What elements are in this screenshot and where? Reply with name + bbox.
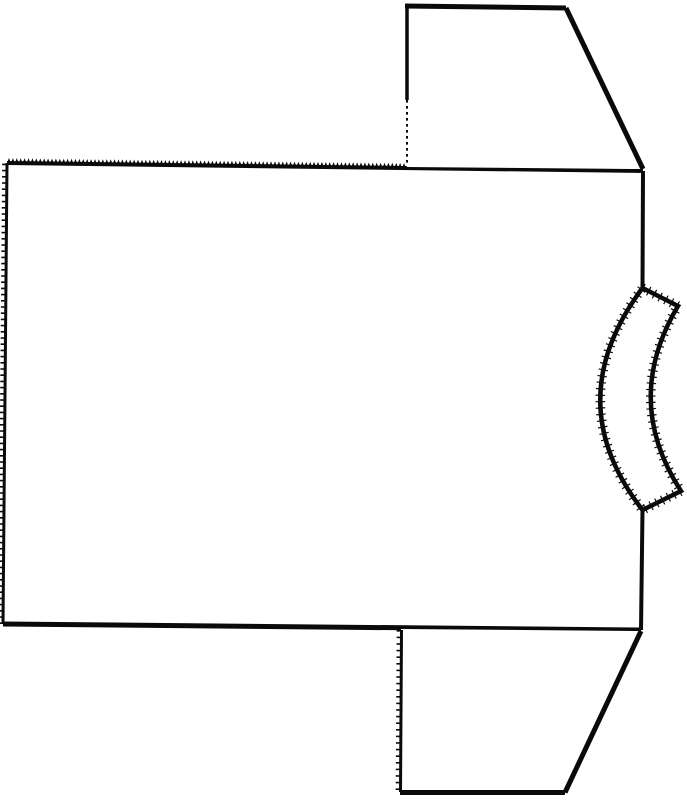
bottom-sleeve-left-tick-texture [398, 630, 399, 792]
top-sleeve-face [407, 5, 643, 169]
top-sleeve [405, 5, 643, 169]
pattern-canvas [0, 0, 687, 800]
bottom-sleeve-left-edge [401, 630, 402, 792]
body-panel-face [3, 163, 643, 630]
body-right-edge-lower [641, 510, 643, 630]
top-sleeve-top-edge [405, 6, 566, 8]
tshirt-pattern-diagram [0, 0, 687, 800]
body-panel [0, 158, 643, 630]
body-right-edge-upper [643, 171, 644, 288]
bottom-sleeve [398, 629, 641, 793]
